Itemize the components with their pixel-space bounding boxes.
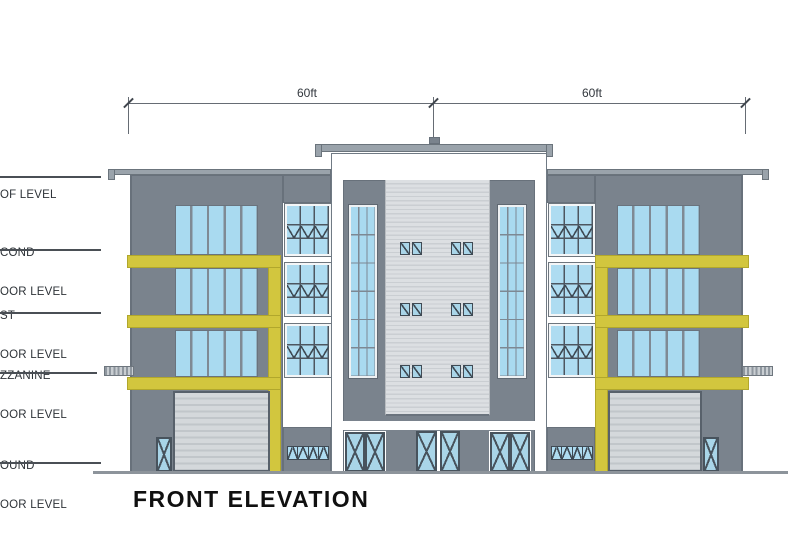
awning-vent-cell <box>301 346 315 358</box>
roller-shutter-door-left <box>173 391 270 472</box>
service-door-right <box>703 437 719 472</box>
underline-first-floor-level <box>0 312 101 314</box>
tower-tall-window-left <box>349 205 377 378</box>
yellow-fin-vertical-right <box>595 255 608 472</box>
right-wing-window-mezzanine <box>617 330 700 377</box>
small-window <box>412 365 422 378</box>
yellow-band-second-floor-right <box>595 255 749 268</box>
vent-cell <box>288 447 297 459</box>
awning-vent-cell <box>579 285 593 297</box>
awning-vent-cell <box>551 285 565 297</box>
vent-cell <box>561 447 571 459</box>
awning-vent-row <box>287 285 329 297</box>
underline-ground-floor-level <box>0 462 101 464</box>
front-elevation-drawing: 60ft 60ft OF LEVEL COND OOR LEVEL ST OOR… <box>0 0 800 552</box>
small-window <box>451 242 461 255</box>
awning-vent-cell <box>301 285 315 297</box>
dimension-line <box>128 103 745 104</box>
awning-vent-cell <box>315 285 329 297</box>
left-bay-strip-window-ground <box>287 446 329 460</box>
vent-cell <box>572 447 582 459</box>
label-roof-level-line1: OF LEVEL <box>0 189 57 202</box>
left-bay-window-mezzanine <box>285 324 331 377</box>
awning-vent-row <box>551 346 593 358</box>
awning-vent-cell <box>565 285 579 297</box>
awning-vent-cell <box>551 346 565 358</box>
service-door-left <box>156 437 172 472</box>
underline-roof-level <box>0 176 101 178</box>
door-leaf <box>345 432 365 472</box>
awning-vent-cell <box>315 226 329 238</box>
tower-small-window-pair <box>451 303 473 316</box>
awning-vent-row <box>551 285 593 297</box>
right-bay-window-first-floor <box>549 263 595 316</box>
right-wing-window-first-floor <box>617 268 700 315</box>
door-leaf <box>440 431 461 472</box>
label-mezzanine-floor-level: ZZANINE OOR LEVEL <box>0 344 67 448</box>
small-window <box>400 365 410 378</box>
entrance-double-door-right <box>490 432 530 472</box>
tower-small-window-pair <box>400 303 422 316</box>
louver-canopy-left <box>104 366 134 376</box>
vent-cell <box>308 447 318 459</box>
label-roof-level: OF LEVEL <box>0 163 57 228</box>
door-leaf <box>365 432 385 472</box>
louver-canopy-right <box>742 366 773 376</box>
tower-cap-lip-right <box>546 144 553 157</box>
tower-small-window-pair <box>451 365 473 378</box>
entrance-double-door-left <box>345 432 385 472</box>
awning-vent-cell <box>301 226 315 238</box>
yellow-band-second-floor-left <box>127 255 281 268</box>
small-window <box>400 242 410 255</box>
small-window <box>412 303 422 316</box>
label-mezzanine-line2: OOR LEVEL <box>0 409 67 422</box>
left-wing-window-second-floor <box>175 205 258 255</box>
roof-slab-left-drip-edge <box>108 169 115 180</box>
small-window <box>451 365 461 378</box>
tower-tall-window-right <box>498 205 526 378</box>
door-leaf <box>490 432 510 472</box>
underline-second-floor-level <box>0 249 101 251</box>
awning-vent-cell <box>565 226 579 238</box>
awning-vent-cell <box>287 226 301 238</box>
awning-vent-cell <box>287 285 301 297</box>
door-leaf <box>416 431 437 472</box>
left-bay-window-first-floor <box>285 263 331 316</box>
dimension-label-right-span: 60ft <box>582 86 602 100</box>
tower-cap-center-block <box>429 137 440 144</box>
right-bay-window-second-floor <box>549 204 595 256</box>
awning-vent-row <box>287 346 329 358</box>
left-wing-window-mezzanine <box>175 330 258 377</box>
awning-vent-row <box>551 226 593 238</box>
small-window <box>463 303 473 316</box>
roller-shutter-door-right <box>608 391 702 472</box>
dimension-label-left-span: 60ft <box>297 86 317 100</box>
small-window <box>451 303 461 316</box>
tower-small-window-pair <box>400 242 422 255</box>
roof-slab-right-drip-edge <box>762 169 769 180</box>
vent-cell <box>582 447 592 459</box>
awning-vent-cell <box>579 346 593 358</box>
tower-small-window-pair <box>451 242 473 255</box>
right-bay-strip-window-ground <box>551 446 593 460</box>
left-wing-window-first-floor <box>175 268 258 315</box>
yellow-band-first-floor-right <box>595 315 749 328</box>
small-window <box>463 365 473 378</box>
small-window <box>400 303 410 316</box>
small-window <box>463 242 473 255</box>
door-leaf <box>510 432 530 472</box>
vent-cell <box>318 447 328 459</box>
right-wing-window-second-floor <box>617 205 700 255</box>
vent-cell <box>552 447 561 459</box>
awning-vent-cell <box>287 346 301 358</box>
small-window <box>412 242 422 255</box>
awning-vent-cell <box>579 226 593 238</box>
tower-cap-lip-left <box>315 144 322 157</box>
awning-vent-cell <box>315 346 329 358</box>
ground-line <box>93 471 788 474</box>
entrance-center-doors <box>416 431 460 472</box>
right-bay-spandrel-top <box>547 175 595 203</box>
label-ground-floor-level: OUND OOR LEVEL <box>0 434 67 538</box>
yellow-band-first-floor-left <box>127 315 281 328</box>
drawing-title: FRONT ELEVATION <box>133 486 369 513</box>
label-ground-floor-line2: OOR LEVEL <box>0 499 67 512</box>
vent-cell <box>297 447 307 459</box>
tower-small-window-pair <box>400 365 422 378</box>
yellow-band-mezzanine-right <box>595 377 749 390</box>
tower-entrance-header-band <box>343 421 535 430</box>
right-bay-window-mezzanine <box>549 324 595 377</box>
awning-vent-cell <box>565 346 579 358</box>
underline-mezzanine-floor-level <box>0 372 97 374</box>
awning-vent-cell <box>551 226 565 238</box>
left-bay-spandrel-top <box>283 175 331 203</box>
tower-siding-panel <box>385 180 490 416</box>
left-bay-window-second-floor <box>285 204 331 256</box>
yellow-band-mezzanine-left <box>127 377 281 390</box>
tower-parapet-cap <box>315 144 553 152</box>
awning-vent-row <box>287 226 329 238</box>
